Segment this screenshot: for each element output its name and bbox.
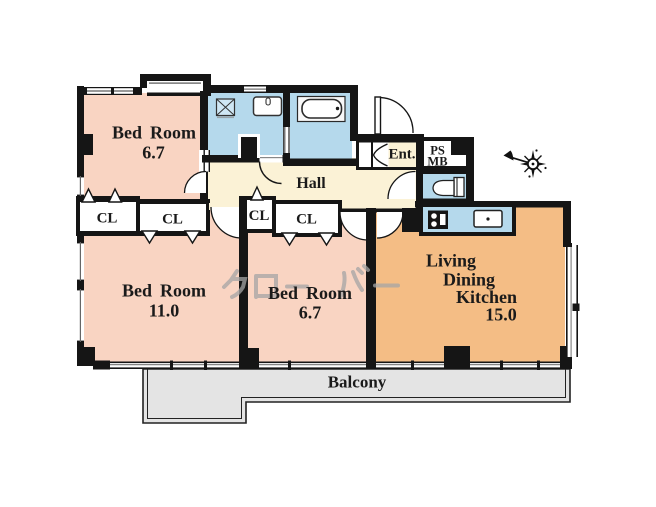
svg-text:11.0: 11.0	[149, 301, 180, 321]
svg-text:15.0: 15.0	[485, 305, 517, 325]
svg-text:Hall: Hall	[296, 175, 326, 192]
svg-text:Ent.: Ent.	[388, 147, 415, 163]
svg-text:CL: CL	[162, 212, 183, 228]
svg-text:Living: Living	[426, 251, 476, 271]
svg-text:CL: CL	[249, 208, 270, 224]
svg-text:Bed Room: Bed Room	[122, 281, 206, 301]
svg-text:CL: CL	[97, 211, 118, 227]
svg-text:6.7: 6.7	[142, 143, 165, 163]
svg-text:6.7: 6.7	[299, 303, 322, 323]
svg-text:CL: CL	[296, 212, 317, 228]
svg-text:Bed Room: Bed Room	[112, 123, 196, 143]
svg-text:Bed Room: Bed Room	[268, 283, 352, 303]
svg-text:Balcony: Balcony	[328, 373, 387, 392]
